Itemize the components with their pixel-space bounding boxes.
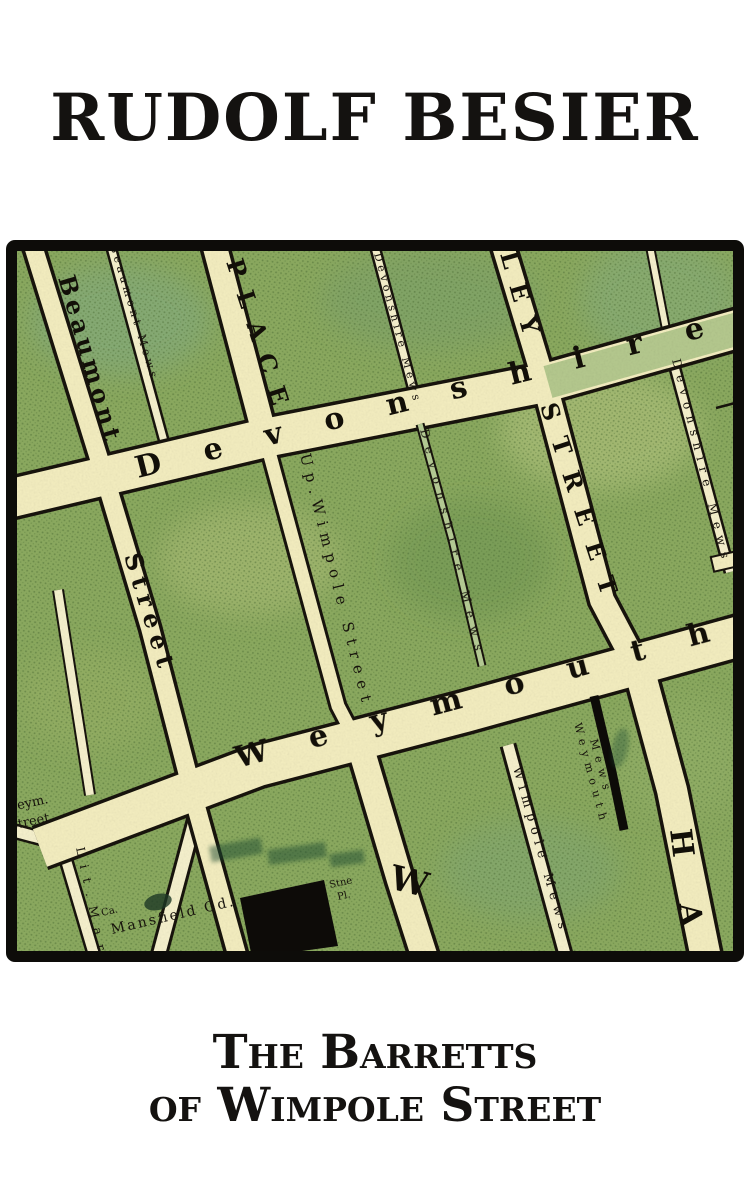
book-title-line1: The Barretts <box>0 1026 750 1079</box>
author-title: RUDOLF BESIER <box>0 80 750 156</box>
map-frame: Beaumont Street Beaumont Mews PLACE Devo… <box>6 240 744 962</box>
book-title: The Barretts of Wimpole Street <box>0 1026 750 1132</box>
vintage-street-map: Beaumont Street Beaumont Mews PLACE Devo… <box>17 251 733 951</box>
book-title-line2: of Wimpole Street <box>0 1079 750 1132</box>
print-grain <box>17 251 733 951</box>
